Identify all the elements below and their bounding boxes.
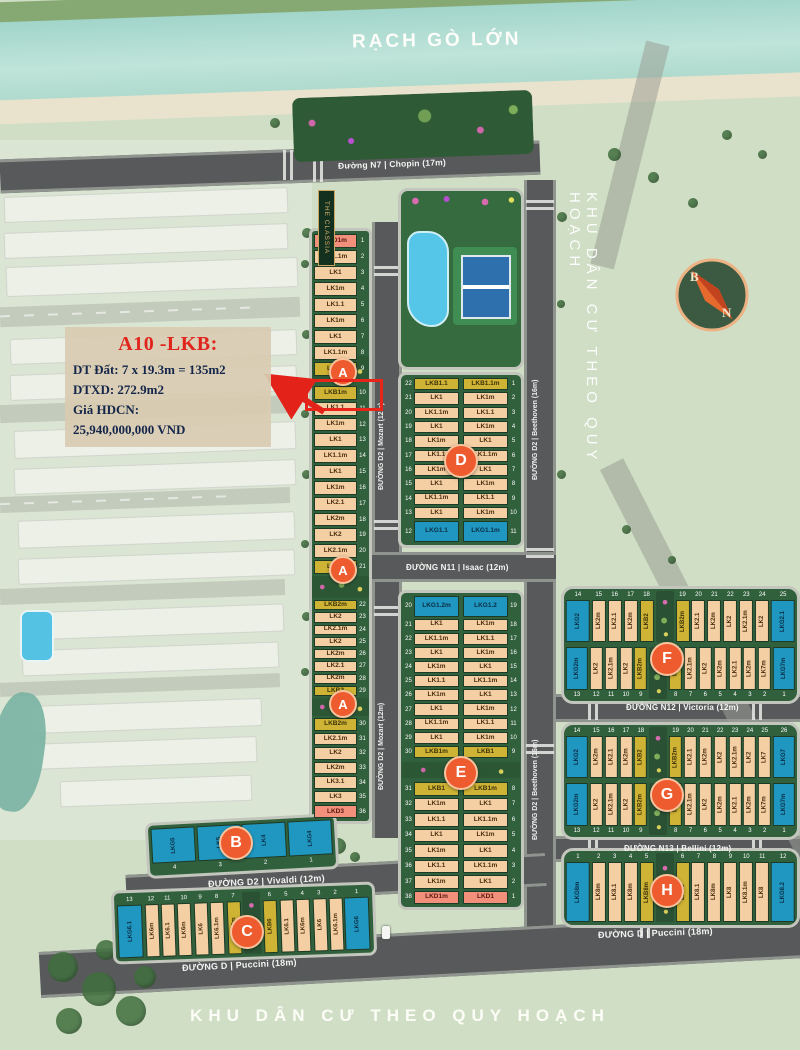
lot-label: LK2.1 xyxy=(691,600,705,642)
lot-number: 1 xyxy=(358,234,367,248)
lot-number: 25 xyxy=(771,591,795,599)
lot-LK1: 34LK1 xyxy=(404,829,459,843)
lot-label: LK8m xyxy=(624,862,638,922)
lot-label: LK2m xyxy=(743,647,756,690)
lot-label: LK2m xyxy=(314,513,357,527)
lot-label: LK2 xyxy=(699,647,712,690)
lot-number: 3 xyxy=(608,853,622,861)
lot-LK1m: 18LK1m xyxy=(404,435,459,447)
lot-LKB2: 18LKB2 xyxy=(634,727,647,778)
lot-LKG1.2: LKG1.219 xyxy=(463,596,518,617)
lot-label: LK1.1 xyxy=(414,813,459,827)
lot-label: LK1m xyxy=(463,732,508,744)
lot-number: 4 xyxy=(624,853,638,861)
lot-number: 4 xyxy=(295,890,310,898)
lot-LK1.1m: 28LK1.1m xyxy=(404,718,459,730)
lot-label: LK2m xyxy=(592,600,606,642)
lot-number: 2 xyxy=(592,853,606,861)
block-e-badge: E xyxy=(444,756,478,790)
lot-number: 16 xyxy=(509,647,518,659)
lot-number: 22 xyxy=(714,727,727,735)
lot-label: LK8.1 xyxy=(691,862,705,922)
lot-label: LK1m xyxy=(463,478,508,490)
lot-label: LK2.1 xyxy=(729,647,742,690)
lot-label: LK2 xyxy=(699,783,712,826)
lot-number: 5 xyxy=(714,691,727,699)
project-sign: THE CLASSIA xyxy=(318,190,335,266)
lot-LKG8.2: 12LKG8.2 xyxy=(771,853,795,922)
lot-number: 14 xyxy=(509,675,518,687)
block-e-bottom-left: 31LKB132LK1m33LK1.134LK135LK1m36LK1.137L… xyxy=(402,780,461,906)
lot-label: LKG1.2 xyxy=(463,596,508,617)
lot-number: 8 xyxy=(358,346,367,360)
lot-label: LKD3 xyxy=(314,805,357,818)
lot-number: 11 xyxy=(509,718,518,730)
lot-number: 8 xyxy=(209,893,224,901)
lot-label: LKG1.1 xyxy=(414,521,459,542)
lot-LK1.1: LK1.117 xyxy=(463,633,518,645)
lot-number: 36 xyxy=(404,860,413,874)
lot-number: 13 xyxy=(117,896,142,905)
lot-label: LK1.1m xyxy=(463,675,508,687)
lot-number: 7 xyxy=(684,691,697,699)
lot-LK2m: LK2m18 xyxy=(314,513,367,527)
block-h-badge: H xyxy=(650,874,684,908)
lot-number: 8 xyxy=(707,853,721,861)
lot-number: 21 xyxy=(707,591,721,599)
lot-LK6: 3LK6 xyxy=(311,889,328,951)
lot-label: LKG2m xyxy=(566,783,588,826)
lot-label: LK2 xyxy=(755,600,769,642)
lot-LK2.1: 20LK2.1 xyxy=(684,727,697,778)
lot-label: LK1 xyxy=(463,798,508,812)
lot-number: 12 xyxy=(144,895,159,903)
lot-label: LK2.1m xyxy=(605,783,618,826)
lot-label: LKB2m xyxy=(314,600,357,610)
lot-label: LKB2m xyxy=(314,718,357,731)
lot-number: 9 xyxy=(509,746,518,758)
lot-number: 6 xyxy=(358,314,367,328)
lot-label: LK1.1m xyxy=(463,813,508,827)
lot-LK2: LK223 xyxy=(314,612,367,622)
lot-LK6.1m: 2LK6.1m xyxy=(328,889,345,951)
road-label-beethoven-lower: ĐƯỜNG D2 | Beethoven (16m) xyxy=(532,680,539,840)
lot-LK3.1: LK3.134 xyxy=(314,776,367,789)
lot-number: 6 xyxy=(509,813,518,827)
lot-number: 8 xyxy=(509,478,518,490)
lot-number: 30 xyxy=(404,746,413,758)
lot-label: LK1 xyxy=(414,421,459,433)
lot-label: LKB2m xyxy=(634,783,647,826)
lot-LK1m: LK1m2 xyxy=(463,392,518,404)
lot-label: LK1.1 xyxy=(463,718,508,730)
lot-label: LK2 xyxy=(620,647,633,690)
lot-LK1m: LK1m5 xyxy=(463,829,518,843)
lot-LKB2m: LKB2m9 xyxy=(634,647,647,699)
lot-LKB2m: LKB2m30 xyxy=(314,718,367,731)
lot-label: LKB2m xyxy=(634,647,647,690)
lot-LK1m: LK1m10 xyxy=(463,507,518,519)
lot-LK1: LK13 xyxy=(314,266,367,280)
lot-number: 5 xyxy=(509,435,518,447)
lot-number: 35 xyxy=(404,844,413,858)
lot-label: LK6.1 xyxy=(279,899,295,952)
lot-label: LK2m xyxy=(314,762,357,775)
lot-LK2: LK26 xyxy=(699,647,712,699)
river-name: RẠCH GÒ LỚN xyxy=(352,29,522,54)
lot-number: 2 xyxy=(509,875,518,889)
compass: B N xyxy=(674,257,750,333)
compass-icon xyxy=(674,257,750,333)
lot-label: LK1m xyxy=(463,619,508,631)
lot-LK7: 25LK7 xyxy=(758,727,771,778)
lot-label: LK1.1m xyxy=(414,493,459,505)
lot-number: 18 xyxy=(634,727,647,735)
lot-label: LK2 xyxy=(314,637,357,647)
lot-label: LK2.1 xyxy=(684,736,697,778)
lot-LKG2m: LKG2m13 xyxy=(566,647,588,699)
lot-label: LK1.1m xyxy=(414,407,459,419)
lot-label: LK8.1m xyxy=(739,862,753,922)
lot-LK2: LK212 xyxy=(590,783,603,835)
park-strip xyxy=(649,727,667,778)
lot-number: 3 xyxy=(311,889,326,897)
lot-number: 11 xyxy=(605,691,618,699)
lot-number: 16 xyxy=(608,591,622,599)
lot-LKG2: 14LKG2 xyxy=(566,727,588,778)
lot-LK2m: 17LK2m xyxy=(624,591,638,642)
callout-price-label: Giá HDCN: xyxy=(73,400,263,420)
lot-label: LK2.1 xyxy=(314,661,357,671)
road-label-victoria: ĐƯỜNG N12 | Victoria (12m) xyxy=(626,703,739,712)
lot-number: 16 xyxy=(404,464,413,476)
lot-number: 9 xyxy=(193,893,208,901)
lot-label: LKG8m xyxy=(566,862,590,922)
lot-label: LKB1.1m xyxy=(463,378,508,390)
lot-label: LK8m xyxy=(707,862,721,922)
lot-LKG2: 14LKG2 xyxy=(566,591,590,642)
lot-LK1: LK115 xyxy=(463,661,518,673)
lot-number: 7 xyxy=(358,330,367,344)
lot-number: 3 xyxy=(358,266,367,280)
lot-number: 20 xyxy=(404,407,413,419)
lot-label: LK1 xyxy=(314,330,357,344)
lot-LKB2m: LKB2m9 xyxy=(634,783,647,835)
lot-number: 26 xyxy=(404,689,413,701)
lot-number: 15 xyxy=(509,661,518,673)
road-label-isaac: ĐƯỜNG N11 | Isaac (12m) xyxy=(406,563,509,572)
lot-number: 29 xyxy=(358,686,367,696)
lot-label: LKG6.1 xyxy=(117,905,143,959)
lot-number: 26 xyxy=(773,727,795,735)
lot-LK1.1: LK1.13 xyxy=(463,407,518,419)
lot-LK6: 9LK6 xyxy=(193,893,210,955)
lot-label: LK2 xyxy=(314,747,357,760)
lot-label: LK2.1m xyxy=(684,647,697,690)
lot-label: LK2.1 xyxy=(605,736,618,778)
lot-label: LKG1.1m xyxy=(463,521,508,542)
lot-LK6m: 4LK6m xyxy=(295,890,312,952)
callout-land-area: DT Đất: 7 x 19.3m = 135m2 xyxy=(73,360,263,380)
lot-number: 24 xyxy=(743,727,756,735)
lot-LK2m: 21LK2m xyxy=(699,727,712,778)
lot-LK1: LK14 xyxy=(463,844,518,858)
compass-south-letter: N xyxy=(722,305,731,321)
lot-label: LKB1 xyxy=(463,746,508,758)
lot-LK1.1m: 22LK1.1m xyxy=(404,633,459,645)
lot-label: LK2 xyxy=(620,783,633,826)
lot-number: 22 xyxy=(404,633,413,645)
lot-number: 2 xyxy=(758,691,771,699)
lot-LK1: LK113 xyxy=(463,689,518,701)
lot-label: LK1m xyxy=(414,661,459,673)
lot-label: LK2.1m xyxy=(684,783,697,826)
lot-label: LK2m xyxy=(714,647,727,690)
lot-LK1: 19LK1 xyxy=(404,421,459,433)
lot-label: LK1 xyxy=(463,689,508,701)
lot-label: LKB1m xyxy=(414,746,459,758)
lot-number: 13 xyxy=(509,689,518,701)
lot-number: 1 xyxy=(773,691,795,699)
zone-label-bottom: KHU DÂN CƯ THEO QUY HOẠCH xyxy=(0,1006,800,1026)
lot-number: 17 xyxy=(624,591,638,599)
lot-LKG7: 26LKG7 xyxy=(773,727,795,778)
block-a-badge: A xyxy=(329,690,357,718)
lot-number: 7 xyxy=(684,827,697,835)
road-label-beethoven-upper: ĐƯỜNG D2 | Beethoven (16m) xyxy=(532,320,539,480)
lot-number: 19 xyxy=(676,591,690,599)
lot-number: 17 xyxy=(620,727,633,735)
park-strip xyxy=(656,591,674,642)
lot-LK1m: 37LK1m xyxy=(404,875,459,889)
lot-number: 20 xyxy=(684,727,697,735)
lot-LK1m: 26LK1m xyxy=(404,689,459,701)
lot-number: 1 xyxy=(566,853,590,861)
lot-label: LK6m xyxy=(144,904,160,957)
lot-number: 22 xyxy=(358,600,367,610)
lot-number: 14 xyxy=(404,493,413,505)
lot-number: 28 xyxy=(358,674,367,684)
lot-number: 15 xyxy=(358,465,367,479)
lot-number: 15 xyxy=(592,591,606,599)
lot-number: 11 xyxy=(605,827,618,835)
lot-label: LK1m xyxy=(314,481,357,495)
lot-LK1.1m: 20LK1.1m xyxy=(404,407,459,419)
lot-number: 23 xyxy=(739,591,753,599)
lot-LK8.1m: 10LK8.1m xyxy=(739,853,753,922)
lot-LKG5: LKG54 xyxy=(151,826,197,872)
lot-label: LK2.1m xyxy=(605,647,618,690)
lot-LK1m: LK1m16 xyxy=(463,647,518,659)
lot-LK2m: 17LK2m xyxy=(620,727,633,778)
lot-number: 17 xyxy=(509,633,518,645)
lot-number: 27 xyxy=(358,661,367,671)
lot-label: LK2m xyxy=(699,736,712,778)
lot-number: 20 xyxy=(358,544,367,558)
lot-number: 19 xyxy=(509,596,518,617)
lot-number: 2 xyxy=(244,858,288,868)
lot-label: LK1 xyxy=(414,703,459,715)
lot-LKD3: LKD336 xyxy=(314,805,367,818)
lot-number: 1 xyxy=(509,378,518,390)
callout-built-area: DTXD: 272.9m2 xyxy=(73,380,263,400)
lot-number: 12 xyxy=(771,853,795,861)
lot-number: 19 xyxy=(669,727,682,735)
lot-LKG1.2m: 20LKG1.2m xyxy=(404,596,459,617)
block-e-top-left: 20LKG1.2m21LK122LK1.1m23LK124LK1m25LK1.1… xyxy=(402,594,461,760)
road-label-mozart-upper: ĐƯỜNG D2 | Mozart (12m) xyxy=(378,350,385,490)
lot-number: 12 xyxy=(404,521,413,542)
lot-number: 36 xyxy=(358,805,367,818)
lot-label: LK2.1 xyxy=(314,497,357,511)
lot-LK2.1m: LK2.1m31 xyxy=(314,733,367,746)
tennis-court xyxy=(461,255,511,319)
lot-label: LKB2 xyxy=(640,600,654,642)
lot-LK2.1m: LK2.1m24 xyxy=(314,625,367,635)
lot-label: LK2m xyxy=(620,736,633,778)
lot-LKG6: 1LKG6 xyxy=(344,888,371,951)
block-f-top-row: 14LKG215LK2m16LK2.117LK2m18LKB219LKB2m20… xyxy=(564,589,797,644)
lot-number: 8 xyxy=(669,691,682,699)
lot-number: 3 xyxy=(198,860,242,870)
lot-number: 31 xyxy=(404,782,413,796)
lot-label: LK1m xyxy=(463,829,508,843)
lot-LKG6.1: 13LKG6.1 xyxy=(117,896,144,959)
lot-number: 11 xyxy=(755,853,769,861)
lot-number: 3 xyxy=(743,827,756,835)
lot-LK1m: LK1m12 xyxy=(463,703,518,715)
lot-label: LKG4 xyxy=(287,819,332,856)
compass-north-letter: B xyxy=(690,269,699,285)
lot-label: LKB6 xyxy=(262,900,278,953)
lot-label: LK6.1m xyxy=(210,902,226,955)
lot-label: LK1 xyxy=(463,661,508,673)
lot-LK2.1m: LK2.1m7 xyxy=(684,783,697,835)
lot-label: LK1m xyxy=(414,798,459,812)
lot-label: LK2m xyxy=(714,783,727,826)
lot-number: 5 xyxy=(509,829,518,843)
block-d-badge: D xyxy=(444,444,478,478)
lot-LK6.1: 11LK6.1 xyxy=(160,894,177,956)
lot-LK8: 11LK8 xyxy=(755,853,769,922)
lot-label: LK2 xyxy=(714,736,727,778)
lot-LK1.1m: LK1.1m3 xyxy=(463,860,518,874)
lot-label: LK1 xyxy=(414,619,459,631)
lot-label: LK2 xyxy=(314,528,357,542)
lot-number: 29 xyxy=(404,732,413,744)
lot-LK6m: 12LK6m xyxy=(144,895,161,957)
lot-number: 38 xyxy=(404,891,413,905)
lot-number: 10 xyxy=(176,894,191,902)
lot-LK2m: LK2m26 xyxy=(314,649,367,659)
lot-label: LK1 xyxy=(414,392,459,404)
lot-label: LK7 xyxy=(758,736,771,778)
lot-number: 1 xyxy=(773,827,795,835)
lot-LK1.1m: LK1.1m14 xyxy=(463,675,518,687)
lot-info-callout: A10 -LKB: DT Đất: 7 x 19.3m = 135m2 DTXD… xyxy=(65,327,271,447)
lot-label: LK2 xyxy=(590,783,603,826)
lot-LK1: LK115 xyxy=(314,465,367,479)
lot-LKG7m: LKG7m1 xyxy=(773,647,795,699)
lot-number: 4 xyxy=(358,282,367,296)
lot-number: 22 xyxy=(723,591,737,599)
lot-LKG2.1: 25LKG2.1 xyxy=(771,591,795,642)
lot-number: 33 xyxy=(404,813,413,827)
lot-number: 18 xyxy=(358,513,367,527)
lot-number: 8 xyxy=(669,827,682,835)
lot-LK1: 21LK1 xyxy=(404,619,459,631)
block-a-badge: A xyxy=(329,556,357,584)
lot-label: LK1m xyxy=(314,314,357,328)
lot-label: LKG2 xyxy=(566,600,590,642)
lot-number: 9 xyxy=(634,827,647,835)
lot-LK2m: LK2m3 xyxy=(743,783,756,835)
lot-number: 1 xyxy=(289,855,333,865)
lot-LK1m: LK1m4 xyxy=(463,421,518,433)
lot-LKG2m: LKG2m13 xyxy=(566,783,588,835)
lot-label: LK1 xyxy=(463,844,508,858)
tennis-court-area xyxy=(453,247,517,325)
lot-label: LKG8.2 xyxy=(771,862,795,922)
lot-label: LK2.1m xyxy=(314,733,357,746)
lot-LK7m: LK7m2 xyxy=(758,783,771,835)
lot-number: 11 xyxy=(160,894,175,902)
lot-number: 7 xyxy=(226,892,241,900)
lot-LK1: 29LK1 xyxy=(404,732,459,744)
lot-label: LK1m xyxy=(414,875,459,889)
lot-number: 21 xyxy=(699,727,712,735)
lot-number: 35 xyxy=(358,791,367,804)
lot-number: 3 xyxy=(509,407,518,419)
lot-label: LK1 xyxy=(414,829,459,843)
lot-LK1m: LK1m18 xyxy=(463,619,518,631)
lot-label: LK2.1 xyxy=(608,600,622,642)
lot-LK6.1m: 8LK6.1m xyxy=(209,893,226,955)
lot-label: LKG7 xyxy=(773,736,795,778)
lot-label: LK2m xyxy=(314,649,357,659)
lot-label: LK2 xyxy=(314,612,357,622)
lot-number: 10 xyxy=(739,853,753,861)
lot-label: LK1m xyxy=(314,282,357,296)
lot-label: LK8.1 xyxy=(608,862,622,922)
lot-LK2m: 15LK2m xyxy=(592,591,606,642)
lot-LK1: 27LK1 xyxy=(404,703,459,715)
lot-LK2m: LK2m28 xyxy=(314,674,367,684)
lot-number: 31 xyxy=(358,733,367,746)
lot-number: 20 xyxy=(404,596,413,617)
lot-number: 28 xyxy=(404,718,413,730)
lot-label: LK1.1m xyxy=(314,346,357,360)
lot-LK2m: LK2m33 xyxy=(314,762,367,775)
block-a-segment-3: LKB2m22LK223LK2.1m24LK225LK2m26LK2.127LK… xyxy=(312,598,369,698)
lot-LK2: 24LK2 xyxy=(743,727,756,778)
block-g-top-row: 14LKG215LK2m16LK2.117LK2m18LKB219LKB2m20… xyxy=(564,725,797,780)
lot-number: 12 xyxy=(590,827,603,835)
lot-label: LK3 xyxy=(314,791,357,804)
lot-label: LK8 xyxy=(755,862,769,922)
lot-LK2.1: LK2.14 xyxy=(729,783,742,835)
lot-label: LK3.1 xyxy=(314,776,357,789)
lot-number: 7 xyxy=(509,798,518,812)
lot-number: 24 xyxy=(404,661,413,673)
lot-label: LK6 xyxy=(193,902,209,955)
lot-LKG4: LKG41 xyxy=(287,819,333,865)
lot-LK8m: 8LK8m xyxy=(707,853,721,922)
lot-LK2: LK232 xyxy=(314,747,367,760)
lot-LK1.1: LK1.19 xyxy=(463,493,518,505)
lot-number: 1 xyxy=(509,891,518,905)
lot-LK1m: LK1m8 xyxy=(463,478,518,490)
